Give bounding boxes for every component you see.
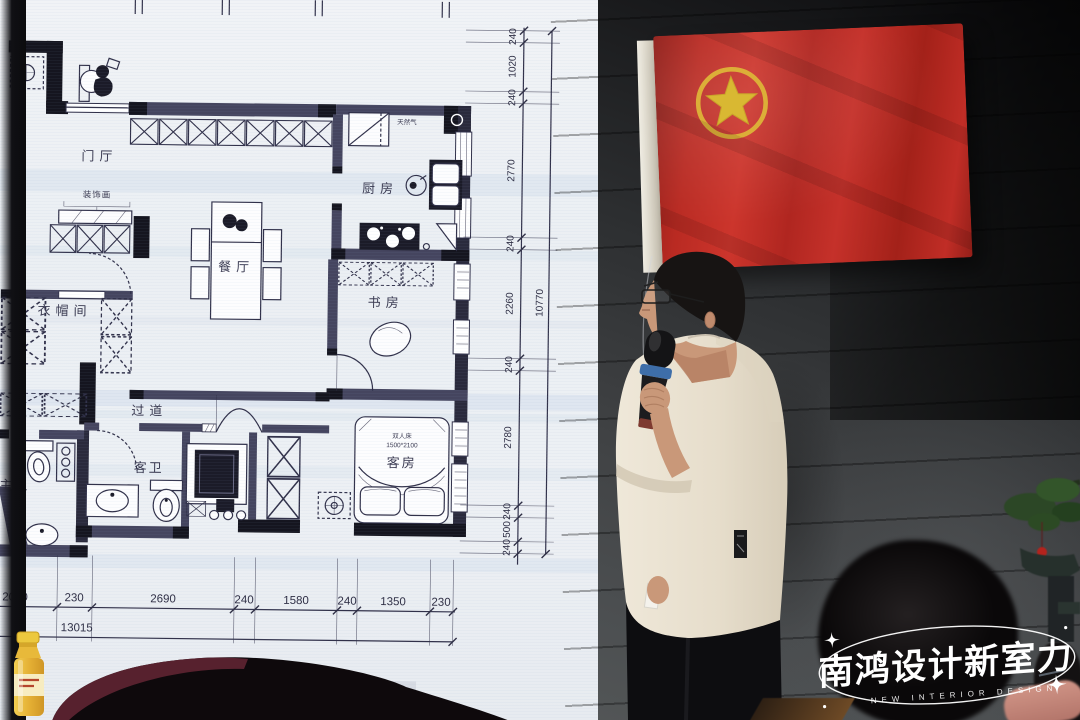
- kitchen-note: 天然气: [397, 117, 417, 126]
- flag-communist-youth-league: [635, 23, 975, 279]
- svg-text:240: 240: [504, 356, 515, 373]
- photo-scene: 门厅 装饰画 天然气 厨房: [0, 0, 1080, 720]
- left-hand: [647, 576, 669, 604]
- sparkle-icon: [823, 631, 840, 648]
- svg-text:240: 240: [508, 28, 519, 45]
- cabinet-row: [130, 119, 332, 147]
- dimensions-right: 240 1020 240 2770 240 2260 240 2780 240 …: [460, 26, 561, 565]
- room-label-dining: 餐厅: [218, 259, 254, 274]
- svg-text:2690: 2690: [150, 593, 176, 605]
- entry-figure: [10, 56, 119, 101]
- bed-note-size: 1500*2100: [386, 442, 418, 449]
- study: 书房: [337, 262, 434, 392]
- label-decor-painting: 装饰画: [83, 189, 112, 199]
- total-width: 13015: [61, 622, 93, 634]
- room-label-study: 书房: [368, 295, 404, 310]
- star-circle-emblem: [684, 55, 780, 151]
- svg-text:240: 240: [507, 89, 518, 106]
- screen-edge: [0, 0, 26, 720]
- svg-text:230: 230: [431, 597, 450, 609]
- chair-back-silhouette: [38, 643, 518, 720]
- room-label-guest-room: 客房: [387, 455, 417, 470]
- room-label-guest-bath: 客卫: [134, 460, 164, 475]
- wall-section-ticks: [135, 0, 449, 18]
- svg-text:1350: 1350: [380, 596, 406, 608]
- svg-text:240: 240: [502, 539, 513, 556]
- svg-text:240: 240: [505, 235, 516, 252]
- room-label-entry: 门厅: [81, 148, 117, 163]
- svg-text:2780: 2780: [503, 426, 514, 449]
- dining: 餐厅: [190, 202, 281, 320]
- projector-screen: 门厅 装饰画 天然气 厨房: [0, 0, 598, 720]
- svg-text:2260: 2260: [505, 292, 516, 315]
- svg-text:2770: 2770: [506, 159, 517, 182]
- svg-text:1020: 1020: [507, 55, 518, 78]
- guest-bath: 客卫: [86, 442, 247, 522]
- total-height: 10770: [535, 289, 546, 317]
- svg-text:240: 240: [234, 594, 253, 606]
- svg-text:500: 500: [502, 521, 513, 538]
- dimensions-bottom: 2070 230 2690 240 1580 240 1350 230 1301…: [0, 554, 458, 646]
- watermark: 南鸿设计新室力 NEW INTERIOR DESIGN: [812, 606, 1080, 720]
- room-label-corridor: 过道: [131, 403, 167, 418]
- drink-bottle: [10, 630, 50, 720]
- presenter-person: [592, 246, 797, 720]
- flag-cloth: [653, 23, 973, 270]
- svg-text:240: 240: [337, 595, 356, 607]
- ear: [705, 312, 715, 328]
- svg-text:240: 240: [502, 503, 513, 520]
- svg-text:1580: 1580: [283, 595, 309, 607]
- bed-note-type: 双人床: [392, 431, 412, 440]
- floor-plan-drawing: 门厅 装饰画 天然气 厨房: [0, 0, 602, 720]
- shirt-logo-patch: [734, 530, 747, 558]
- room-label-kitchen: 厨房: [362, 181, 398, 196]
- room-label-cloakroom: 衣帽间: [37, 303, 91, 319]
- svg-text:230: 230: [64, 592, 83, 604]
